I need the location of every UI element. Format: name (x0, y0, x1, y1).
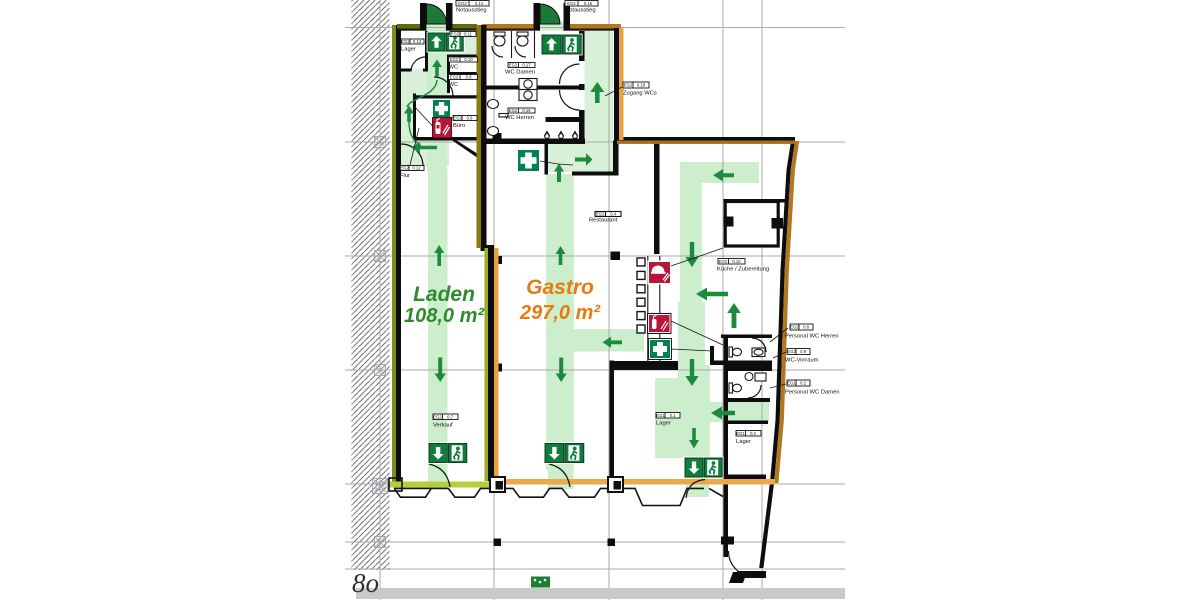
svg-text:0.2: 0.2 (750, 431, 756, 436)
svg-text:Laden: Laden (413, 283, 475, 306)
svg-text:0.10: 0.10 (732, 259, 741, 264)
svg-text:EG1: EG1 (787, 381, 796, 386)
svg-text:108,0 m²: 108,0 m² (404, 305, 485, 327)
svg-text:297,0 m²: 297,0 m² (519, 302, 601, 324)
svg-text:Zugang WCs: Zugang WCs (623, 91, 657, 97)
svg-text:Flur: Flur (400, 173, 410, 179)
svg-text:Lager: Lager (401, 47, 416, 53)
svg-text:0.8: 0.8 (803, 325, 809, 330)
svg-text:EG2: EG2 (790, 325, 799, 330)
svg-text:Restaurant: Restaurant (589, 218, 618, 224)
svg-text:EG2: EG2 (509, 108, 518, 113)
svg-text:EG1: EG1 (736, 431, 745, 436)
svg-text:Personal WC Herren: Personal WC Herren (785, 334, 838, 340)
svg-text:Notausstieg: Notausstieg (565, 8, 596, 14)
svg-text:WC-Vorraum: WC-Vorraum (785, 358, 819, 364)
svg-text:EG2: EG2 (458, 1, 467, 6)
svg-text:Lager: Lager (656, 421, 671, 427)
svg-text:8o: 8o (352, 568, 379, 598)
svg-text:Personal WC Damen: Personal WC Damen (785, 390, 839, 396)
svg-text:0.17: 0.17 (522, 63, 531, 68)
svg-text:0.4: 0.4 (610, 212, 616, 217)
svg-text:Verkauf: Verkauf (433, 423, 453, 429)
svg-text:EG2: EG2 (719, 259, 728, 264)
svg-text:0.16: 0.16 (522, 108, 531, 113)
svg-text:0.10: 0.10 (464, 57, 473, 62)
svg-text:EG2: EG2 (453, 116, 462, 121)
svg-text:EG2: EG2 (596, 212, 605, 217)
svg-text:0.1: 0.1 (670, 413, 676, 418)
svg-text:Küche / Zubereitung: Küche / Zubereitung (717, 267, 769, 273)
svg-text:Lager: Lager (736, 439, 751, 445)
svg-text:EG2: EG2 (787, 349, 796, 354)
svg-text:0.14: 0.14 (475, 1, 484, 6)
svg-text:0.19: 0.19 (637, 83, 646, 88)
svg-text:0.2: 0.2 (800, 381, 806, 386)
svg-text:Büro: Büro (453, 123, 465, 129)
svg-text:Notausstieg: Notausstieg (456, 8, 487, 14)
svg-text:0.9: 0.9 (466, 75, 472, 80)
svg-text:0.12: 0.12 (412, 166, 421, 171)
svg-text:EG2: EG2 (451, 32, 460, 37)
svg-text:0.11: 0.11 (464, 32, 473, 37)
svg-text:0.13: 0.13 (413, 39, 422, 44)
svg-text:0.7: 0.7 (447, 414, 453, 419)
svg-text:EG2: EG2 (450, 75, 459, 80)
svg-text:WC Herren: WC Herren (505, 115, 534, 121)
svg-text:EG2: EG2 (400, 166, 409, 171)
svg-text:0.9: 0.9 (800, 349, 806, 354)
svg-text:EG2: EG2 (401, 39, 410, 44)
svg-text:0.15: 0.15 (584, 1, 593, 6)
svg-text:WC Damen: WC Damen (505, 70, 535, 76)
svg-text:WC: WC (449, 82, 459, 88)
svg-text:WC: WC (449, 65, 459, 71)
svg-text:Gastro: Gastro (526, 276, 594, 299)
svg-text:EG2: EG2 (567, 1, 576, 6)
svg-text:0.8: 0.8 (467, 116, 473, 121)
svg-text:EG2: EG2 (509, 63, 518, 68)
svg-text:EG2: EG2 (624, 83, 633, 88)
svg-text:EG2: EG2 (433, 414, 442, 419)
svg-text:EG1: EG1 (656, 413, 665, 418)
svg-text:EG2: EG2 (450, 57, 459, 62)
